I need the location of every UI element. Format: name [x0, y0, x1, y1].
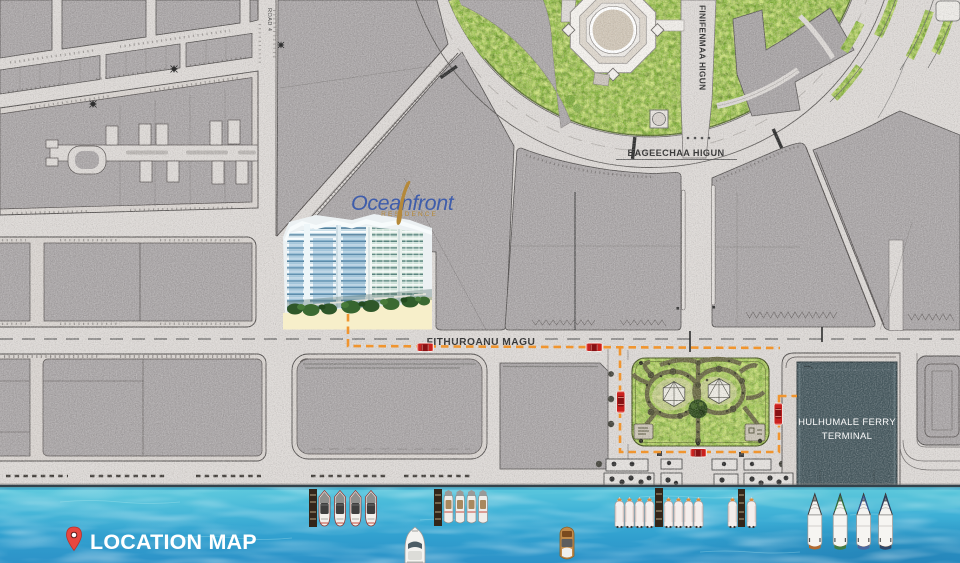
svg-text:LOCATION MAP: LOCATION MAP: [90, 530, 257, 554]
svg-text:RESIDENCE: RESIDENCE: [381, 211, 438, 218]
